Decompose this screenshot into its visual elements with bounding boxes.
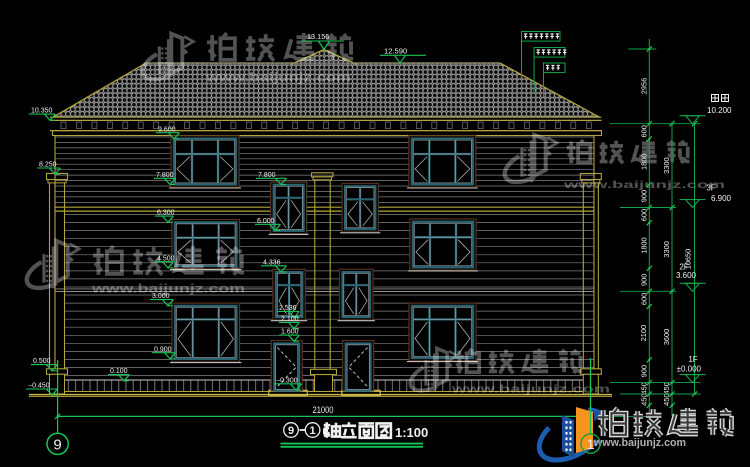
svg-text:1:100: 1:100 <box>395 425 428 440</box>
svg-text:2100: 2100 <box>639 325 648 341</box>
svg-text:±0.000: ±0.000 <box>677 365 702 374</box>
svg-text:9: 9 <box>53 436 61 453</box>
svg-text:900: 900 <box>639 274 648 286</box>
svg-text:600: 600 <box>639 209 648 221</box>
svg-text:1800: 1800 <box>639 154 648 170</box>
svg-text:3600: 3600 <box>662 329 671 345</box>
svg-text:1800: 1800 <box>639 237 648 253</box>
svg-text:450: 450 <box>639 382 648 394</box>
svg-text:3300: 3300 <box>662 157 671 173</box>
svg-text:450: 450 <box>662 394 671 406</box>
svg-text:www.baijunjz.com: www.baijunjz.com <box>205 71 351 85</box>
svg-text:www.baijunjz.com: www.baijunjz.com <box>593 437 686 449</box>
svg-text:21000: 21000 <box>313 405 334 416</box>
svg-text:1: 1 <box>310 425 316 437</box>
svg-text:www.baijunjz.com: www.baijunjz.com <box>562 179 725 191</box>
svg-text:9: 9 <box>288 425 294 437</box>
svg-text:6.900: 6.900 <box>711 194 732 203</box>
svg-text:450: 450 <box>639 394 648 406</box>
svg-text:3300: 3300 <box>662 241 671 257</box>
svg-text:13.156: 13.156 <box>307 32 329 41</box>
svg-text:3F: 3F <box>706 184 715 193</box>
svg-text:3.600: 3.600 <box>676 271 697 280</box>
svg-text:1: 1 <box>587 436 595 452</box>
svg-text:1F: 1F <box>688 355 697 364</box>
svg-text:600: 600 <box>639 293 648 305</box>
svg-text:600: 600 <box>639 125 648 137</box>
svg-text:2956: 2956 <box>639 78 648 94</box>
svg-text:900: 900 <box>639 365 648 377</box>
svg-text:www.baijunjz.com: www.baijunjz.com <box>450 384 610 396</box>
svg-text:450: 450 <box>662 382 671 394</box>
svg-text:900: 900 <box>639 190 648 202</box>
svg-text:10.200: 10.200 <box>707 106 732 115</box>
svg-text:12.590: 12.590 <box>384 46 407 55</box>
